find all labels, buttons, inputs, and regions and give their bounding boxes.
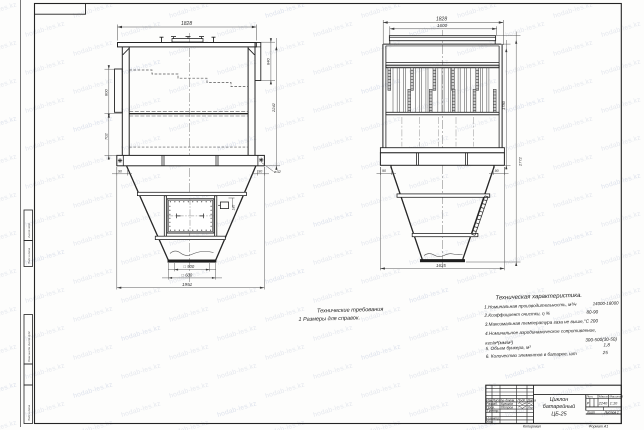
svg-text:hodab-les.kz: hodab-les.kz [217, 134, 258, 153]
svg-text:1 Размеры для справок.: 1 Размеры для справок. [298, 315, 360, 323]
svg-text:hodab-les.kz: hodab-les.kz [409, 210, 450, 229]
svg-text:hodab-les.kz: hodab-les.kz [361, 191, 402, 210]
svg-text:hodab-les.kz: hodab-les.kz [553, 419, 594, 430]
svg-text:hodab-les.kz: hodab-les.kz [25, 362, 66, 381]
svg-text:hodab-les.kz: hodab-les.kz [0, 381, 18, 400]
svg-text:hodab-les.kz: hodab-les.kz [121, 96, 162, 115]
svg-text:hodab-les.kz: hodab-les.kz [457, 381, 498, 400]
svg-text:hodab-les.kz: hodab-les.kz [505, 248, 546, 267]
svg-text:hodab-les.kz: hodab-les.kz [0, 305, 18, 324]
svg-text:hodab-les.kz: hodab-les.kz [409, 286, 450, 305]
svg-text:Подп и дата: Подп и дата [27, 247, 31, 264]
svg-text:hodab-les.kz: hodab-les.kz [169, 381, 210, 400]
svg-text:hodab-les.kz: hodab-les.kz [25, 96, 66, 115]
svg-text:hodab-les.kz: hodab-les.kz [0, 115, 18, 134]
svg-text:4.Номинальное аэродинамическо: 4.Номинальное аэродинамическое сопротивл… [485, 328, 596, 336]
svg-text:Лит.: Лит. [586, 395, 594, 399]
svg-text:90: 90 [118, 169, 122, 173]
svg-text:hodab-les.kz: hodab-les.kz [25, 286, 66, 305]
svg-text:hodab-les.kz: hodab-les.kz [169, 305, 210, 324]
svg-text:hodab-les.kz: hodab-les.kz [361, 77, 402, 96]
svg-text:hodab-les.kz: hodab-les.kz [73, 267, 114, 286]
svg-text:hodab-les.kz: hodab-les.kz [361, 419, 402, 430]
svg-text:hodab-les.kz: hodab-les.kz [313, 172, 354, 191]
svg-text:hodab-les.kz: hodab-les.kz [313, 400, 354, 419]
svg-text:Взам инв № Инв № дубл: Взам инв № Инв № дубл [27, 331, 31, 362]
svg-text:hodab-les.kz: hodab-les.kz [217, 286, 258, 305]
svg-text:hodab-les.kz: hodab-les.kz [73, 39, 114, 58]
svg-text:hodab-les.kz: hodab-les.kz [0, 229, 18, 248]
svg-text:hodab-les.kz: hodab-les.kz [217, 58, 258, 77]
svg-text:Подп и дата: Подп и дата [27, 404, 31, 421]
svg-text:hodab-les.kz: hodab-les.kz [553, 229, 594, 248]
svg-text:hodab-les.kz: hodab-les.kz [553, 191, 594, 210]
svg-text:1.Номинальная производительно: 1.Номинальная производительность, м³/ч [484, 302, 577, 310]
svg-text:hodab-les.kz: hodab-les.kz [553, 39, 594, 58]
svg-text:90: 90 [382, 169, 386, 173]
svg-text:hodab-les.kz: hodab-les.kz [505, 58, 546, 77]
svg-text:90: 90 [258, 169, 262, 173]
svg-text:hodab-les.kz: hodab-les.kz [217, 324, 258, 343]
svg-text:Инв № подл: Инв № подл [27, 222, 31, 238]
svg-text:hodab-les.kz: hodab-les.kz [361, 115, 402, 134]
svg-text:hodab-les.kz: hodab-les.kz [217, 20, 258, 39]
svg-text:hodab-les.kz: hodab-les.kz [361, 343, 402, 362]
svg-text:hodab-les.kz: hodab-les.kz [0, 39, 18, 58]
svg-text:hodab-les.kz: hodab-les.kz [361, 381, 402, 400]
svg-text:80-90: 80-90 [586, 309, 598, 314]
svg-text:hodab-les.kz: hodab-les.kz [457, 39, 498, 58]
svg-text:hodab-les.kz: hodab-les.kz [457, 229, 498, 248]
svg-text:hodab-les.kz: hodab-les.kz [505, 96, 546, 115]
svg-text:hodab-les.kz: hodab-les.kz [121, 210, 162, 229]
svg-text:1600: 1600 [437, 23, 448, 28]
svg-text:hodab-les.kz: hodab-les.kz [313, 20, 354, 39]
svg-text:Р: Р [587, 402, 590, 406]
svg-text:Дата: Дата [527, 398, 537, 402]
svg-text:Лист: Лист [586, 410, 596, 414]
svg-text:5. Объем бункера, м³: 5. Объем бункера, м³ [485, 345, 531, 351]
svg-text:1828: 1828 [181, 21, 192, 27]
svg-text:hodab-les.kz: hodab-les.kz [73, 153, 114, 172]
svg-text:Техническая характеристика.: Техническая характеристика. [495, 293, 582, 302]
svg-text:hodab-les.kz: hodab-les.kz [457, 115, 498, 134]
svg-text:1951: 1951 [182, 282, 193, 287]
svg-text:hodab-les.kz: hodab-les.kz [313, 286, 354, 305]
svg-text:Формат А1: Формат А1 [589, 424, 609, 428]
svg-text:hodab-les.kz: hodab-les.kz [169, 343, 210, 362]
svg-text:hodab-les.kz: hodab-les.kz [409, 400, 450, 419]
svg-text:hodab-les.kz: hodab-les.kz [265, 343, 306, 362]
svg-text:hodab-les.kz: hodab-les.kz [73, 419, 114, 430]
svg-text:1:10: 1:10 [610, 402, 618, 406]
svg-text:hodab-les.kz: hodab-les.kz [121, 362, 162, 381]
svg-text:hodab-les.kz: hodab-les.kz [121, 400, 162, 419]
svg-text:hodab-les.kz: hodab-les.kz [0, 77, 18, 96]
svg-text:hodab-les.kz: hodab-les.kz [553, 115, 594, 134]
svg-text:1,8: 1,8 [603, 342, 610, 347]
svg-text:□ 600: □ 600 [182, 272, 193, 277]
svg-text:hodab-les.kz: hodab-les.kz [409, 324, 450, 343]
svg-text:hodab-les.kz: hodab-les.kz [73, 381, 114, 400]
svg-text:25: 25 [602, 350, 609, 355]
svg-text:hodab-les.kz: hodab-les.kz [217, 210, 258, 229]
svg-text:hodab-les.kz: hodab-les.kz [217, 96, 258, 115]
svg-text:hodab-les.kz: hodab-les.kz [505, 134, 546, 153]
svg-text:Т.контр.: Т.контр. [486, 409, 499, 413]
svg-text:hodab-les.kz: hodab-les.kz [313, 134, 354, 153]
svg-text:hodab-les.kz: hodab-les.kz [265, 267, 306, 286]
svg-text:800: 800 [103, 89, 108, 96]
svg-text:hodab-les.kz: hodab-les.kz [25, 20, 66, 39]
svg-text:hodab-les.kz: hodab-les.kz [361, 229, 402, 248]
svg-text:Петров: Петров [501, 406, 513, 410]
svg-text:Подп.: Подп. [518, 398, 527, 402]
svg-text:hodab-les.kz: hodab-les.kz [0, 419, 18, 430]
svg-text:hodab-les.kz: hodab-les.kz [265, 381, 306, 400]
svg-text:ЦБ-25: ЦБ-25 [551, 411, 567, 417]
svg-text:hodab-les.kz: hodab-les.kz [409, 172, 450, 191]
svg-text:hodab-les.kz: hodab-les.kz [265, 419, 306, 430]
svg-text:hodab-les.kz: hodab-les.kz [313, 248, 354, 267]
svg-text:hodab-les.kz: hodab-les.kz [121, 134, 162, 153]
svg-text:1780: 1780 [501, 100, 506, 110]
svg-text:hodab-les.kz: hodab-les.kz [553, 77, 594, 96]
svg-text:hodab-les.kz: hodab-les.kz [0, 1, 18, 20]
svg-text:Масштаб: Масштаб [610, 395, 624, 399]
svg-text:hodab-les.kz: hodab-les.kz [457, 267, 498, 286]
svg-text:hodab-les.kz: hodab-les.kz [25, 172, 66, 191]
svg-text:Листов 1: Листов 1 [604, 410, 619, 414]
svg-text:hodab-les.kz: hodab-les.kz [505, 20, 546, 39]
svg-text:hodab-les.kz: hodab-les.kz [505, 172, 546, 191]
svg-text:hodab-les.kz: hodab-les.kz [505, 210, 546, 229]
svg-text:hodab-les.kz: hodab-les.kz [121, 286, 162, 305]
svg-text:hodab-les.kz: hodab-les.kz [265, 229, 306, 248]
svg-text:□ 500: □ 500 [184, 264, 195, 269]
svg-text:hodab-les.kz: hodab-les.kz [361, 39, 402, 58]
svg-text:hodab-les.kz: hodab-les.kz [25, 134, 66, 153]
svg-text:hodab-les.kz: hodab-les.kz [169, 419, 210, 430]
svg-text:hodab-les.kz: hodab-les.kz [121, 324, 162, 343]
svg-text:hodab-les.kz: hodab-les.kz [121, 172, 162, 191]
svg-text:2772: 2772 [518, 156, 523, 167]
svg-text:2240: 2240 [598, 402, 608, 406]
svg-text:Циклон: Циклон [550, 397, 569, 403]
svg-text:hodab-les.kz: hodab-les.kz [361, 267, 402, 286]
svg-text:hodab-les.kz: hodab-les.kz [0, 343, 18, 362]
svg-text:hodab-les.kz: hodab-les.kz [313, 58, 354, 77]
svg-text:hodab-les.kz: hodab-les.kz [409, 362, 450, 381]
svg-text:Копировал: Копировал [523, 424, 541, 428]
svg-text:hodab-les.kz: hodab-les.kz [265, 115, 306, 134]
svg-text:hodab-les.kz: hodab-les.kz [73, 229, 114, 248]
svg-text:hodab-les.kz: hodab-les.kz [25, 58, 66, 77]
svg-text:hodab-les.kz: hodab-les.kz [313, 96, 354, 115]
svg-text:hodab-les.kz: hodab-les.kz [73, 115, 114, 134]
svg-text:hodab-les.kz: hodab-les.kz [217, 400, 258, 419]
svg-text:hodab-les.kz: hodab-les.kz [121, 20, 162, 39]
svg-text:840: 840 [265, 58, 270, 65]
svg-text:Масса: Масса [599, 395, 608, 399]
svg-text:hodab-les.kz: hodab-les.kz [313, 362, 354, 381]
svg-text:hodab-les.kz: hodab-les.kz [553, 153, 594, 172]
svg-text:hodab-les.kz: hodab-les.kz [0, 267, 18, 286]
svg-text:2.Коэффициент очистки, η %: 2.Коэффициент очистки, η % [483, 311, 550, 318]
svg-text:hodab-les.kz: hodab-les.kz [73, 305, 114, 324]
svg-text:hodab-les.kz: hodab-les.kz [265, 191, 306, 210]
svg-text:hodab-les.kz: hodab-les.kz [553, 267, 594, 286]
svg-text:14000-18000: 14000-18000 [593, 300, 620, 306]
svg-text:Утв.: Утв. [486, 420, 493, 424]
svg-text:hodab-les.kz: hodab-les.kz [121, 248, 162, 267]
svg-text:hodab-les.kz: hodab-les.kz [0, 153, 18, 172]
svg-text:hodab-les.kz: hodab-les.kz [0, 191, 18, 210]
svg-text:hodab-les.kz: hodab-les.kz [505, 362, 546, 381]
svg-text:2242: 2242 [271, 102, 276, 113]
svg-text:hodab-les.kz: hodab-les.kz [313, 324, 354, 343]
svg-text:hodab-les.kz: hodab-les.kz [73, 191, 114, 210]
svg-text:180: 180 [232, 205, 236, 211]
svg-text:батарейный: батарейный [543, 403, 575, 410]
svg-text:hodab-les.kz: hodab-les.kz [217, 248, 258, 267]
svg-text:1828: 1828 [436, 17, 447, 23]
svg-text:hodab-les.kz: hodab-les.kz [313, 210, 354, 229]
svg-text:90: 90 [495, 169, 499, 173]
svg-text:hodab-les.kz: hodab-les.kz [73, 343, 114, 362]
svg-text:300-500(30-50): 300-500(30-50) [585, 337, 617, 343]
svg-text:ø32: ø32 [274, 169, 282, 174]
svg-text:702: 702 [103, 133, 108, 140]
svg-text:hodab-les.kz: hodab-les.kz [217, 362, 258, 381]
svg-text:1635: 1635 [436, 263, 446, 268]
